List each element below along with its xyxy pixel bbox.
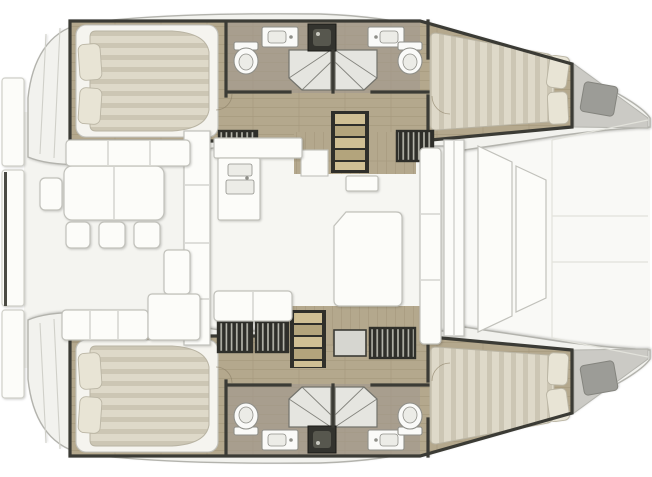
pillow: [78, 43, 102, 80]
chair: [66, 222, 90, 248]
floor-plan-canvas: [0, 0, 652, 477]
bow-locker-pad: [580, 81, 619, 116]
cockpit-sofa-bottom: [62, 310, 148, 340]
faucet-icon: [374, 35, 378, 39]
stair-step: [294, 325, 322, 335]
forward-cockpit-seat: [478, 146, 512, 332]
double-bed-mattress: [430, 33, 554, 130]
chair: [99, 222, 125, 248]
companionway-stairs-stbd-aft: [218, 322, 252, 352]
stair-step: [335, 126, 365, 136]
chair: [134, 222, 160, 248]
chair: [40, 178, 62, 210]
cockpit-side-seat: [164, 250, 190, 294]
floor-hatch: [334, 330, 366, 356]
davit-bar: [4, 172, 7, 306]
stern-platforms: [2, 78, 24, 398]
stair-step: [335, 114, 365, 124]
stern-platform-bottom: [2, 310, 24, 398]
stair-step: [335, 150, 365, 160]
stair-step: [294, 349, 322, 359]
forward-cabin-bed: [430, 33, 570, 130]
pillow: [78, 87, 102, 124]
toilet-bowl: [239, 54, 253, 70]
stair-step: [335, 162, 365, 170]
stair-step: [335, 138, 365, 148]
washbasin: [380, 31, 398, 43]
dark-hatch-inner: [313, 29, 331, 46]
stair-step: [294, 361, 322, 367]
toilet-bowl: [403, 54, 417, 70]
galley-stove: [226, 180, 254, 194]
salon-shelf: [346, 176, 378, 191]
companionway-stairs-stbd-mid: [256, 322, 288, 352]
faucet-icon: [245, 176, 249, 180]
stair-step: [294, 313, 322, 323]
center-staircase: [290, 310, 326, 368]
galley-sink: [228, 164, 252, 176]
companionway-stairs-stbd-fwd: [370, 328, 415, 358]
shower: [289, 50, 331, 90]
cockpit-bench-top: [66, 140, 190, 166]
center-staircase: [331, 111, 369, 173]
aft-cabin-bed: [76, 25, 218, 137]
deck-hatch-dark: [308, 24, 336, 51]
stair-step: [294, 337, 322, 347]
washbasin: [268, 31, 286, 43]
double-bed-mattress: [90, 31, 209, 131]
cockpit-corner-seat: [148, 294, 200, 340]
stern-platform-top: [2, 78, 24, 166]
chart-table: [334, 212, 402, 306]
pillow: [547, 91, 569, 124]
hatch-glint: [316, 32, 320, 36]
catamaran-floor-plan: [0, 0, 652, 477]
floor-hatch: [301, 150, 328, 176]
shower: [335, 50, 377, 90]
forward-bench-sofa: [420, 148, 441, 344]
forward-cockpit-seat-back: [516, 166, 546, 312]
galley-top-counter: [214, 138, 302, 158]
faucet-icon: [289, 35, 293, 39]
